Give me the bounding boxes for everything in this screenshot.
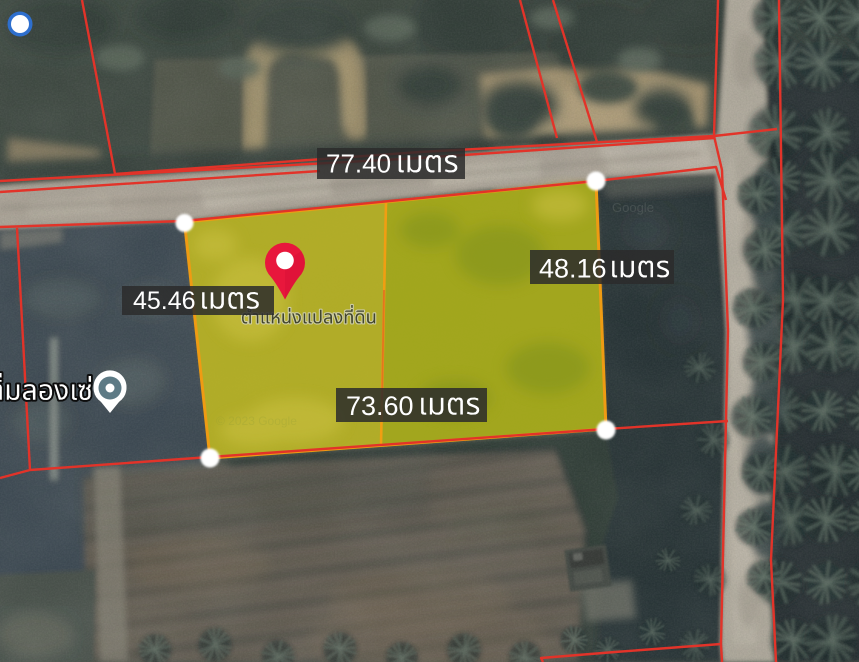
svg-text:© 2023 Google: © 2023 Google (216, 414, 297, 428)
svg-text:Google: Google (612, 200, 654, 215)
svg-text:73.60: 73.60 (346, 391, 414, 421)
svg-text:45.46: 45.46 (133, 287, 196, 315)
svg-text:48.16: 48.16 (539, 254, 607, 284)
svg-text:77.40: 77.40 (326, 149, 391, 179)
